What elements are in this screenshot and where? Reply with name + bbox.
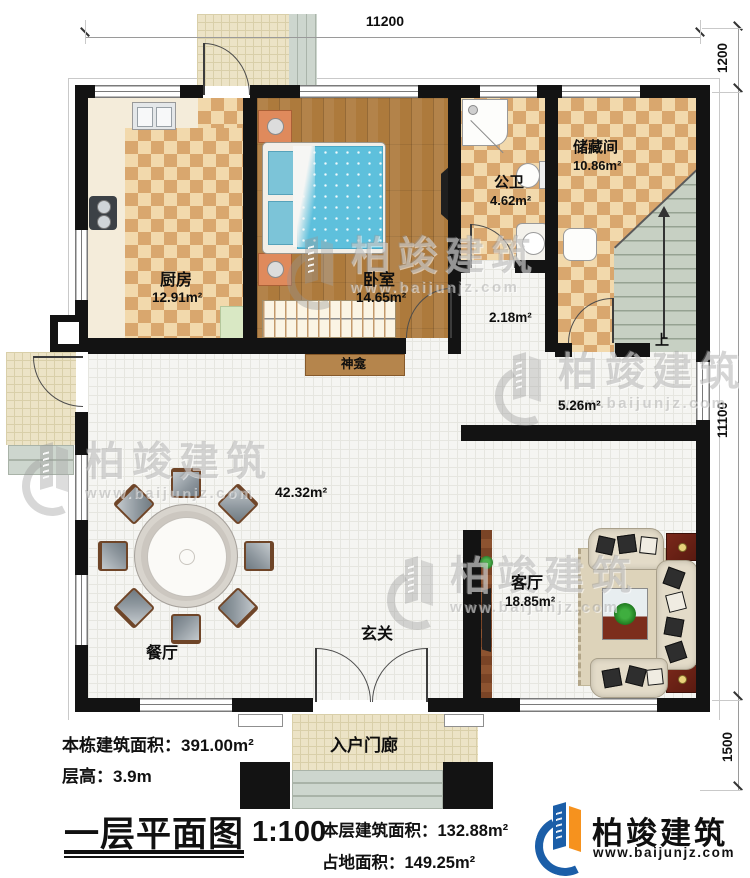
logo-building-blue (553, 802, 566, 850)
room-label-living: 客厅 (511, 575, 543, 593)
wall (75, 520, 88, 575)
window (480, 85, 537, 98)
area-hall: 2.18m² (489, 311, 532, 326)
wall (232, 698, 313, 712)
ext-line (702, 28, 742, 29)
logo-building-orange (569, 806, 581, 852)
watermark-name: 柏竣建筑 (350, 236, 538, 276)
stair-arrow-head (658, 206, 670, 217)
stair-arrow-shaft (663, 216, 665, 338)
table-knob (678, 675, 687, 684)
burner (97, 200, 111, 214)
shower (462, 99, 508, 146)
watermark-logo-icon (498, 352, 548, 414)
wall-bath-storage (545, 98, 558, 352)
room-area-kitchen: 12.91m² (152, 291, 202, 306)
kitchen-sink (132, 102, 176, 130)
watermark-url: www.baijunjz.com (85, 485, 273, 502)
footer-floor-height: 层高：3.9m (62, 762, 152, 787)
dim-right-top-label: 1200 (697, 33, 747, 83)
stove (89, 196, 117, 230)
cushion (665, 641, 688, 664)
room-label-bath: 公卫 (494, 175, 524, 192)
watermark-logo-icon (290, 236, 340, 298)
wall-south (88, 338, 406, 354)
entry-step (292, 783, 443, 796)
table-hub (179, 549, 195, 565)
cushion (664, 617, 685, 638)
porch-column (443, 762, 493, 809)
wall (180, 85, 203, 98)
dim-right-bottom-label: 1500 (702, 722, 750, 772)
watermark-name: 柏竣建筑 (85, 442, 273, 482)
side-table (666, 533, 698, 561)
watermark-logo-icon (25, 442, 75, 504)
window (562, 85, 640, 98)
ext-line (85, 20, 86, 44)
dim-top-label: 11200 (340, 14, 430, 29)
ext-line (712, 92, 742, 93)
area-corridor: 5.26m² (558, 399, 601, 414)
wall-corridor (461, 425, 700, 441)
wall (696, 420, 710, 712)
dining-chair (98, 541, 128, 571)
title-underline (64, 856, 244, 858)
table-knob (678, 543, 687, 552)
window-sill (238, 714, 283, 727)
room-label-bedroom: 卧室 (363, 272, 395, 290)
area-great-room: 42.32m² (275, 485, 327, 500)
wall (75, 698, 140, 712)
window (140, 698, 232, 712)
wall (428, 698, 520, 712)
wall (418, 85, 480, 98)
room-label-dining: 餐厅 (146, 645, 178, 663)
wall-kitchen-bedroom (243, 98, 257, 338)
watermark: 柏竣建筑 www.baijunjz.com (25, 442, 273, 504)
wall (250, 85, 300, 98)
room-label-shrine: 神龛 (341, 358, 366, 372)
outline-top (68, 78, 720, 79)
room-area-living: 18.85m² (505, 595, 555, 610)
title-underline (64, 850, 244, 854)
dining-chair (171, 614, 201, 644)
entry-step (292, 770, 443, 783)
cushion (625, 665, 647, 687)
floor-plan-canvas: 11200 1200 11100 1500 柏竣建筑 www.baijunjz.… (0, 0, 750, 878)
entry-step (292, 796, 443, 809)
footer-total-area: 本栋建筑面积：391.00m² (62, 731, 254, 756)
window (75, 575, 88, 645)
entry-door-leaf (426, 648, 428, 702)
watermark-name: 柏竣建筑 (558, 352, 746, 392)
brand-logo-icon (538, 802, 588, 864)
sink-basin (156, 107, 172, 127)
room-label-storage: 储藏间 (573, 140, 618, 157)
water-heater (563, 228, 597, 261)
cushion (665, 591, 687, 613)
cushion (662, 566, 685, 589)
room-area-bedroom: 14.65m² (356, 291, 406, 306)
room-label-entry-porch: 入户门廊 (330, 737, 398, 756)
shower-head (468, 105, 478, 115)
kitchen-tile-floor (198, 98, 243, 128)
wall (696, 85, 710, 352)
ext-line (712, 700, 742, 701)
burner (97, 215, 111, 229)
storage-door-leaf (612, 298, 614, 343)
room-area-storage: 10.86m² (573, 159, 621, 173)
room-area-bath: 4.62m² (490, 194, 531, 208)
window (300, 85, 418, 98)
stairs-up-label: 上 (655, 333, 669, 348)
window (95, 85, 180, 98)
pillow (268, 151, 294, 195)
cushion (595, 535, 615, 555)
watermark-logo-icon (390, 556, 440, 618)
watermark-name: 柏竣建筑 (450, 556, 638, 596)
back-door-leaf (203, 43, 205, 95)
entry-door-leaf (315, 648, 317, 702)
duvet-fold (293, 146, 315, 247)
brand-url: www.baijunjz.com (593, 845, 735, 860)
lamp (267, 118, 284, 135)
lamp (267, 261, 284, 278)
watermark: 柏竣建筑 www.baijunjz.com (498, 352, 746, 414)
watermark: 柏竣建筑 www.baijunjz.com (290, 236, 538, 298)
plan-scale: 1:100 (252, 816, 326, 849)
nightstand (258, 110, 292, 143)
pier-core (58, 322, 79, 344)
footer-floor-area: 本层建筑面积：132.88m² (322, 817, 508, 841)
cushion (617, 534, 637, 554)
back-porch-steps (289, 14, 317, 86)
cushion (639, 536, 658, 555)
dim-line-top (85, 37, 700, 38)
sofa-bottom (590, 658, 668, 698)
footer-footprint: 占地面积：149.25m² (322, 849, 475, 873)
porch-column (240, 762, 290, 809)
cushion (602, 668, 623, 689)
room-label-kitchen: 厨房 (160, 272, 192, 290)
window (75, 230, 88, 300)
ext-line (700, 790, 742, 791)
wall (75, 85, 88, 230)
side-door-leaf (33, 356, 83, 358)
cushion (646, 668, 664, 686)
window-sill (444, 714, 484, 727)
window (520, 698, 657, 712)
room-label-foyer: 玄关 (361, 626, 393, 644)
sofa-right (656, 560, 698, 670)
dining-chair (244, 541, 274, 571)
wall (537, 85, 562, 98)
sink-basin (137, 107, 153, 127)
